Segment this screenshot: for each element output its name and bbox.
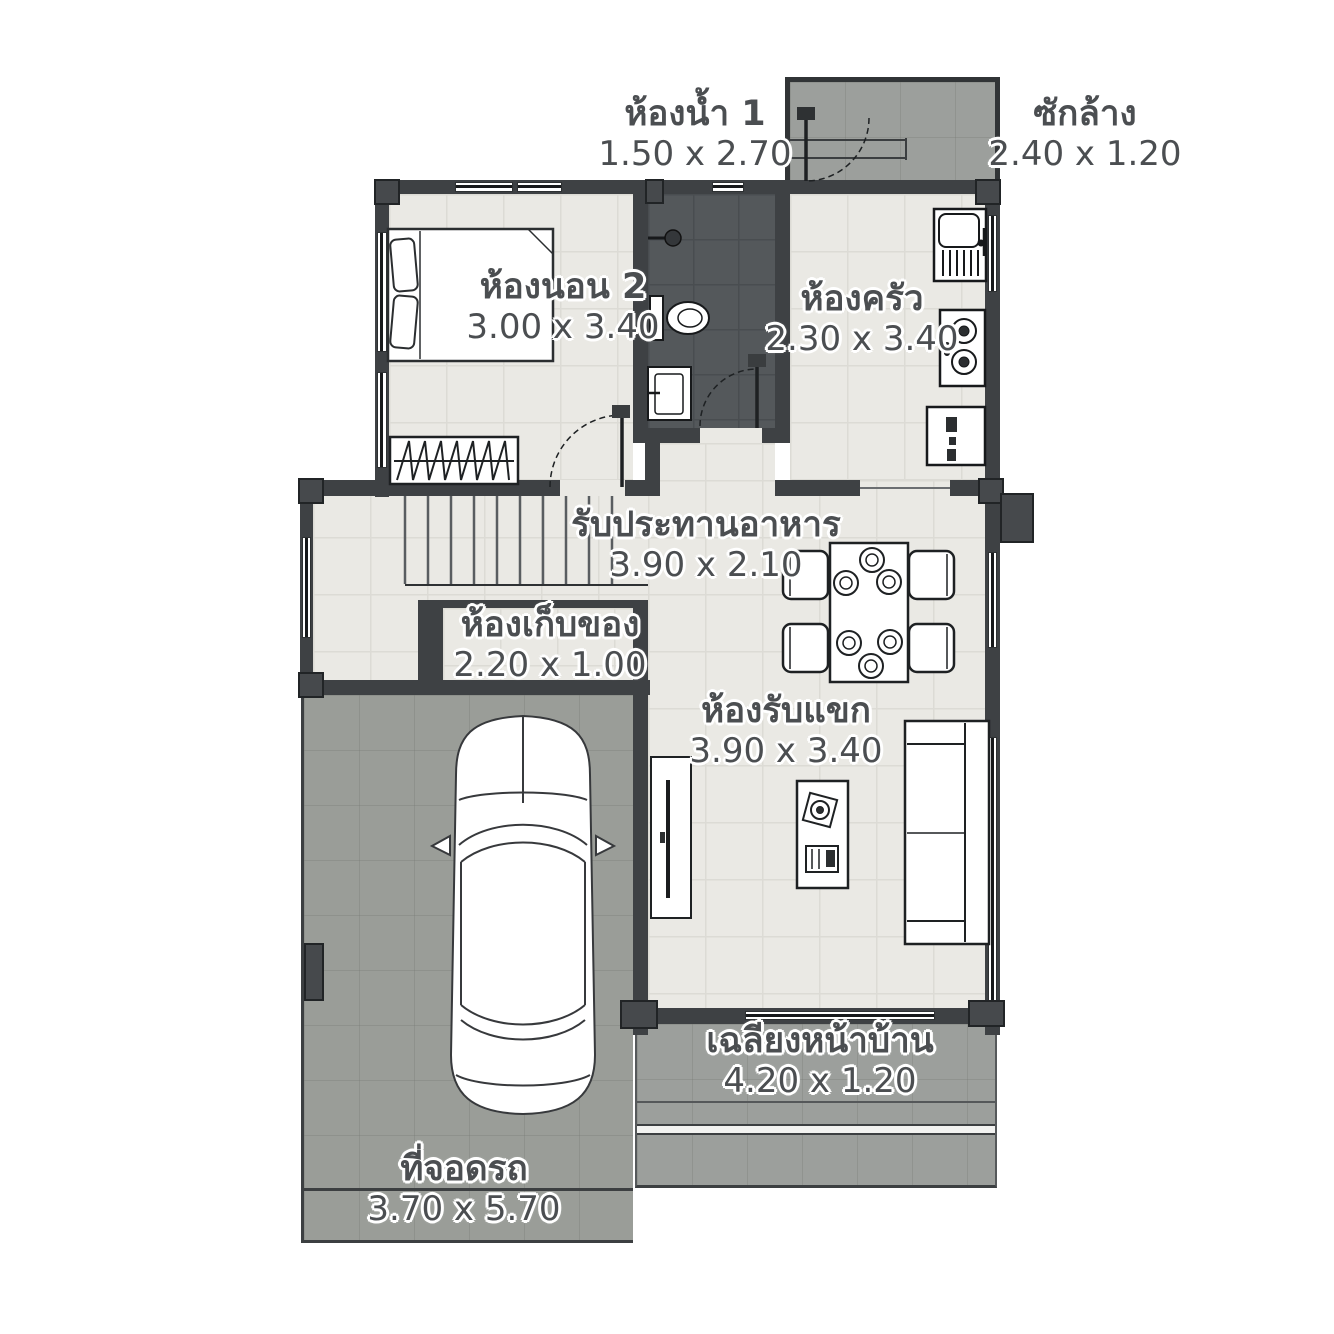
room-label-laundry: ซักล้าง 2.40 x 1.20 bbox=[988, 95, 1181, 174]
room-label-bathroom1: ห้องน้ำ 1 1.50 x 2.70 bbox=[598, 95, 791, 174]
room-dims: 4.20 x 1.20 bbox=[706, 1061, 933, 1102]
coffee-table bbox=[797, 781, 848, 888]
room-name: ห้องนอน 2 bbox=[466, 268, 659, 307]
bathroom-door bbox=[700, 354, 766, 443]
room-name: ซักล้าง bbox=[988, 95, 1181, 134]
room-dims: 2.40 x 1.20 bbox=[988, 134, 1181, 175]
room-dims: 3.00 x 3.40 bbox=[466, 307, 659, 348]
laundry-door bbox=[790, 107, 906, 181]
kitchen-sink bbox=[934, 209, 986, 281]
room-name: ห้องครัว bbox=[765, 280, 958, 319]
room-dims: 2.30 x 3.40 bbox=[765, 319, 958, 360]
room-name: เฉลียงหน้าบ้าน bbox=[706, 1022, 933, 1061]
sofa bbox=[905, 721, 989, 944]
wardrobe bbox=[390, 437, 518, 484]
room-name: ที่จอดรถ bbox=[367, 1150, 560, 1189]
room-name: ห้องน้ำ 1 bbox=[598, 95, 791, 134]
kitchen-cabinet bbox=[927, 407, 985, 465]
room-label-living: ห้องรับแขก 3.90 x 3.40 bbox=[689, 692, 882, 771]
room-label-bedroom2: ห้องนอน 2 3.00 x 3.40 bbox=[466, 268, 659, 347]
room-dims: 2.20 x 1.00 bbox=[453, 645, 646, 686]
room-label-parking: ที่จอดรถ 3.70 x 5.70 bbox=[367, 1150, 560, 1229]
room-label-storage: ห้องเก็บของ 2.20 x 1.00 bbox=[453, 606, 646, 685]
room-dims: 1.50 x 2.70 bbox=[598, 134, 791, 175]
room-label-porch: เฉลียงหน้าบ้าน 4.20 x 1.20 bbox=[706, 1022, 933, 1101]
room-label-dining: รับประทานอาหาร 3.90 x 2.10 bbox=[571, 506, 841, 585]
bathroom-sink bbox=[648, 367, 691, 420]
floor-plan: ห้องน้ำ 1 1.50 x 2.70 ซักล้าง 2.40 x 1.2… bbox=[0, 0, 1334, 1334]
room-dims: 3.90 x 2.10 bbox=[571, 545, 841, 586]
room-label-kitchen: ห้องครัว 2.30 x 3.40 bbox=[765, 280, 958, 359]
bedroom-door bbox=[550, 405, 630, 496]
shower-head-icon bbox=[648, 230, 681, 246]
room-dims: 3.70 x 5.70 bbox=[367, 1189, 560, 1230]
room-name: ห้องเก็บของ bbox=[453, 606, 646, 645]
room-name: รับประทานอาหาร bbox=[571, 506, 841, 545]
room-name: ห้องรับแขก bbox=[689, 692, 882, 731]
room-dims: 3.90 x 3.40 bbox=[689, 731, 882, 772]
car bbox=[432, 716, 614, 1114]
furniture-layer bbox=[0, 0, 1334, 1334]
tv-console bbox=[651, 757, 691, 918]
